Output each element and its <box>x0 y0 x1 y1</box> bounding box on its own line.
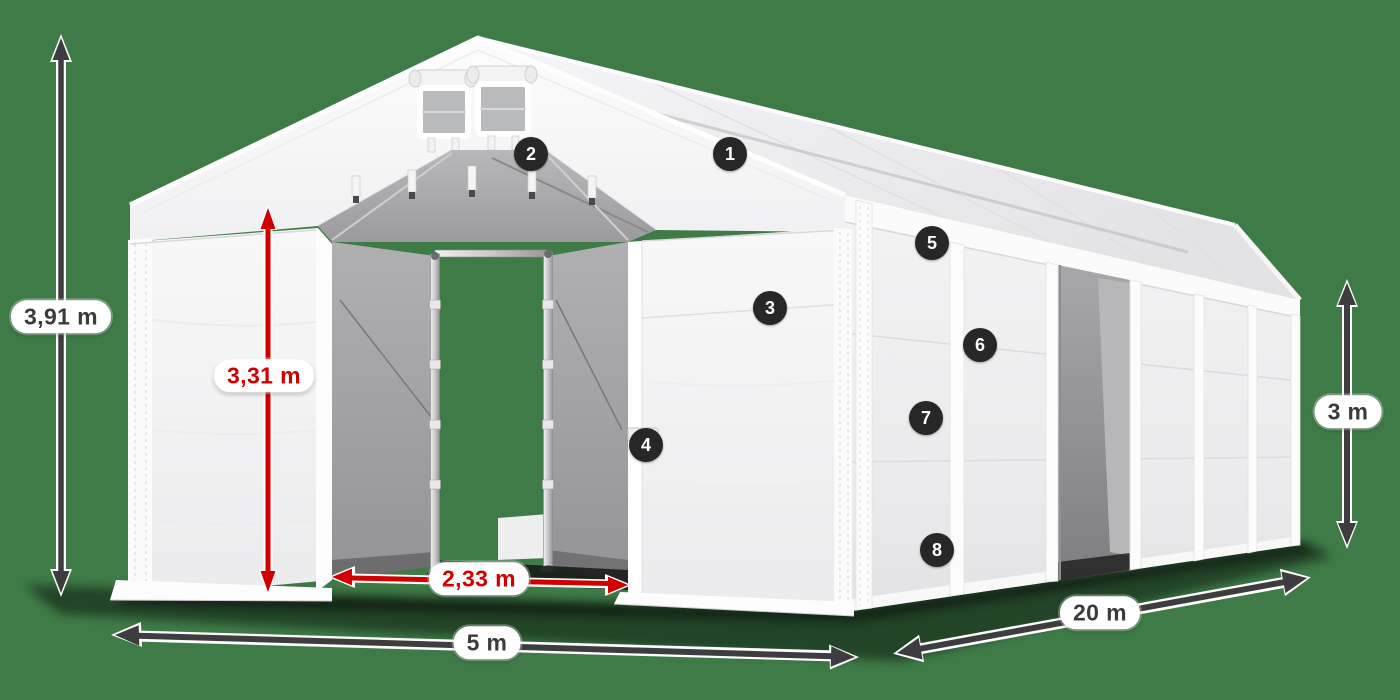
callout-badge-4[interactable]: 4 <box>629 428 663 462</box>
tent-dimension-diagram: 3,91 m 3,31 m 2,33 m 5 m 20 m 3 m 1 2 3 … <box>0 0 1400 700</box>
entrance-width-label: 2,33 m <box>429 562 529 595</box>
front-left-panel <box>110 228 332 601</box>
tent-illustration <box>0 0 1400 700</box>
width-label: 5 m <box>454 626 521 659</box>
callout-badge-1[interactable]: 1 <box>713 137 747 171</box>
length-label: 20 m <box>1060 596 1140 629</box>
open-door-right <box>548 242 628 584</box>
callout-badge-7[interactable]: 7 <box>909 401 943 435</box>
callout-badge-3[interactable]: 3 <box>753 291 787 325</box>
side-door-opening <box>1058 265 1130 581</box>
callout-badge-2[interactable]: 2 <box>514 137 548 171</box>
callout-badge-6[interactable]: 6 <box>963 328 997 362</box>
side-height-label: 3 m <box>1315 395 1382 428</box>
entrance-height-label: 3,31 m <box>214 359 314 392</box>
callout-badge-8[interactable]: 8 <box>920 533 954 567</box>
open-door-left <box>332 242 435 580</box>
total-height-label: 3,91 m <box>11 300 111 333</box>
front-right-door-panel <box>614 228 854 616</box>
callout-badge-5[interactable]: 5 <box>915 226 949 260</box>
front-entrance-interior <box>318 150 656 590</box>
